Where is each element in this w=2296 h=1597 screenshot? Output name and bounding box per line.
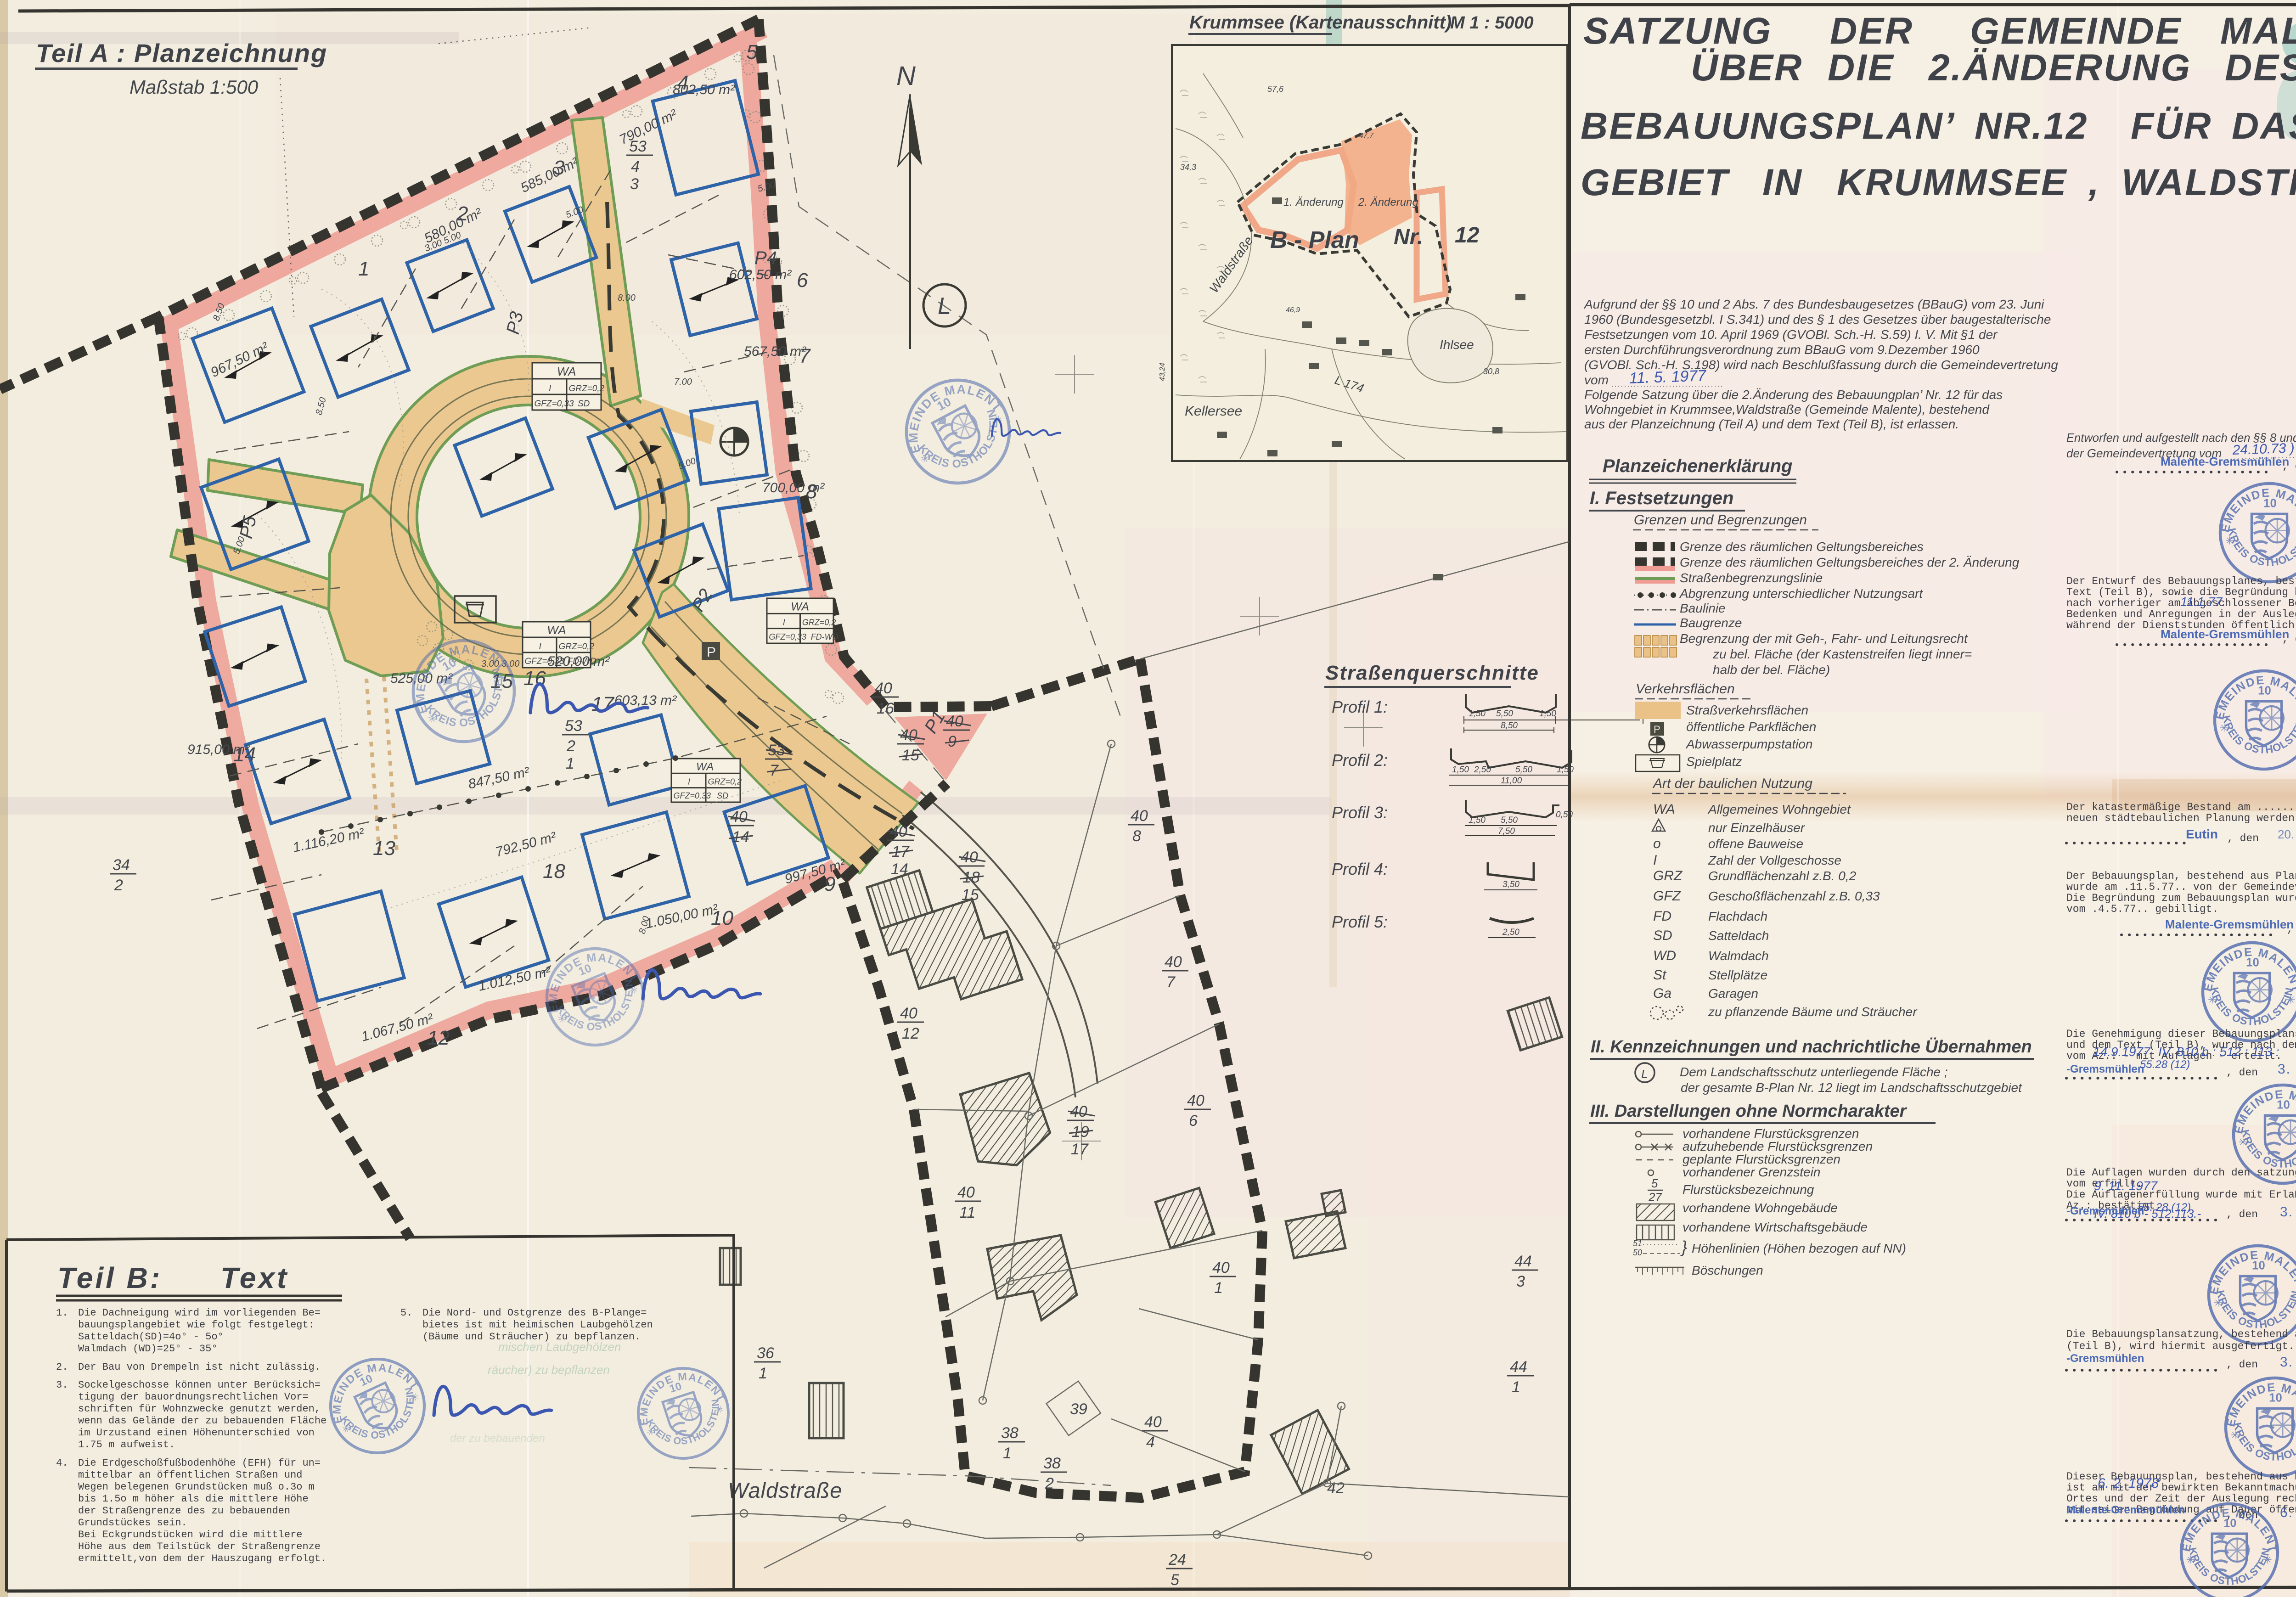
- svg-text:aus der Planzeichnung (Teil A): aus der Planzeichnung (Teil A) und dem T…: [1584, 417, 1959, 431]
- svg-text:IN: IN: [1762, 162, 1803, 203]
- svg-text:18: 18: [543, 860, 565, 883]
- svg-text:Bedenken und Anregungen in der: Bedenken und Anregungen in der Auslegung…: [2066, 608, 2296, 620]
- svg-text:Art der baulichen Nutzung: Art der baulichen Nutzung: [1652, 776, 1812, 791]
- svg-text:3. FEB. 1978: 3. FEB. 1978: [2280, 1355, 2296, 1370]
- svg-text:öffentliche Parkflächen: öffentliche Parkflächen: [1686, 720, 1816, 734]
- svg-text:, den: , den: [2226, 1359, 2258, 1371]
- svg-text:6: 6: [1189, 1112, 1198, 1130]
- svg-text:ermittelt,von dem der Hauszuga: ermittelt,von dem der Hauszugang erfolgt…: [78, 1553, 326, 1564]
- svg-text:Ga: Ga: [1653, 986, 1671, 1001]
- svg-text:,: ,: [2088, 162, 2100, 203]
- svg-text:Waldstraße: Waldstraße: [728, 1478, 842, 1502]
- svg-text:40: 40: [875, 680, 892, 697]
- svg-text:L: L: [938, 293, 951, 320]
- svg-text:DER: DER: [1830, 10, 1913, 52]
- svg-text:520,00 m²: 520,00 m²: [547, 654, 610, 669]
- svg-text:4: 4: [677, 72, 688, 94]
- svg-text:27: 27: [1648, 1190, 1662, 1204]
- svg-text:34,3: 34,3: [1180, 163, 1196, 172]
- svg-text:3: 3: [553, 157, 565, 179]
- svg-text:Der Bebauungsplan, bestehend a: Der Bebauungsplan, bestehend aus Planzei…: [2066, 870, 2296, 882]
- svg-text:BEBAUUNGSPLAN’: BEBAUUNGSPLAN’: [1581, 105, 1955, 147]
- svg-text:schriften für Wohnzwecke genut: schriften für Wohnzwecke genutzt werden,: [78, 1403, 321, 1415]
- svg-text:4.: 4.: [56, 1457, 68, 1469]
- svg-text:MALENTE: MALENTE: [2220, 10, 2296, 52]
- svg-text:Sockelgeschosse können unter B: Sockelgeschosse können unter Berücksich=: [78, 1379, 321, 1391]
- svg-text:Folgende Satzung über die 2.Än: Folgende Satzung über die 2.Änderung des…: [1584, 388, 2003, 402]
- svg-text:2: 2: [114, 877, 123, 894]
- svg-text:7: 7: [1166, 973, 1176, 991]
- svg-text:P: P: [1654, 724, 1660, 735]
- svg-text:ÜBER: ÜBER: [1691, 47, 1803, 89]
- svg-text:44: 44: [1514, 1253, 1532, 1270]
- svg-text:Spielplatz: Spielplatz: [1686, 754, 1742, 769]
- svg-text:Höhenlinien (Höhen bezogen auf: Höhenlinien (Höhen bezogen auf NN): [1692, 1241, 1906, 1255]
- svg-text:7,50: 7,50: [1498, 827, 1515, 836]
- svg-text:8,50: 8,50: [1501, 721, 1518, 731]
- svg-text:GEBIET: GEBIET: [1581, 162, 1730, 203]
- svg-text:GRZ=0,2: GRZ=0,2: [708, 777, 742, 787]
- svg-text:11,00: 11,00: [1501, 776, 1522, 786]
- svg-text:nur Einzelhäuser: nur Einzelhäuser: [1708, 821, 1806, 835]
- svg-text:3. FEB. 1978: 3. FEB. 1978: [2278, 1062, 2296, 1077]
- svg-text:Aufgrund der §§ 10 und 2 Abs.: Aufgrund der §§ 10 und 2 Abs. 7 des Bund…: [1583, 297, 2044, 311]
- svg-text:6. FEB. 1978: 6. FEB. 1978: [2280, 1505, 2296, 1520]
- svg-text:im Urzustand einen Höhenunters: im Urzustand einen Höhenunterschied von: [78, 1427, 315, 1439]
- svg-text:, den: , den: [2282, 461, 2296, 472]
- svg-text:16: 16: [877, 700, 894, 717]
- svg-text:5.: 5.: [400, 1307, 412, 1319]
- svg-text:Profil 4:: Profil 4:: [1332, 860, 1388, 878]
- svg-text:Abwasserpumpstation: Abwasserpumpstation: [1685, 737, 1812, 751]
- svg-text:8.00: 8.00: [618, 293, 636, 303]
- svg-text:WA: WA: [547, 623, 566, 637]
- svg-text:Grenzen und Begrenzungen: Grenzen und Begrenzungen: [1634, 512, 1807, 528]
- svg-text:KRUMMSEE: KRUMMSEE: [1837, 162, 2067, 203]
- svg-text:NR.12: NR.12: [1975, 105, 2088, 147]
- svg-text:Garagen: Garagen: [1708, 986, 1758, 1001]
- svg-text:, den: , den: [2227, 832, 2259, 844]
- svg-text:Die Begründung zum Bebauungspl: Die Begründung zum Bebauungsplan wurde m…: [2066, 892, 2296, 904]
- svg-text:Walmdach (WD)=25° - 35°: Walmdach (WD)=25° - 35°: [78, 1343, 218, 1355]
- svg-text:43,24: 43,24: [1159, 363, 1166, 381]
- svg-text:Ihlsee: Ihlsee: [1440, 337, 1474, 352]
- svg-text:Abgrenzung unterschiedlicher N: Abgrenzung unterschiedlicher Nutzungsart: [1679, 586, 1923, 601]
- svg-text:Malente-Gremsmühlen: Malente-Gremsmühlen: [2161, 455, 2289, 468]
- svg-text:(Teil B), wird hiermit ausgefe: (Teil B), wird hiermit ausgefertigt.: [2066, 1340, 2295, 1352]
- svg-text:GRZ: GRZ: [1653, 868, 1683, 883]
- svg-text:3.: 3.: [56, 1379, 68, 1391]
- svg-text:GRZ=0,2: GRZ=0,2: [802, 618, 836, 627]
- svg-text:30,8: 30,8: [1483, 367, 1499, 376]
- svg-text:Maßstab 1:500: Maßstab 1:500: [129, 76, 259, 98]
- svg-text:1.75 m aufweist.: 1.75 m aufweist.: [78, 1439, 175, 1451]
- svg-text:Grenze des räumlichen Geltungs: Grenze des räumlichen Geltungsbereiches: [1680, 540, 1924, 554]
- svg-text:DAS: DAS: [2232, 105, 2296, 147]
- svg-text:DES: DES: [2225, 47, 2296, 89]
- svg-text:, den: , den: [2226, 1067, 2258, 1079]
- svg-text:GRZ=0,2: GRZ=0,2: [558, 642, 594, 652]
- svg-text:11.1.77.: 11.1.77.: [2180, 595, 2226, 609]
- svg-text:5: 5: [1651, 1176, 1658, 1190]
- svg-text:Stellplätze: Stellplätze: [1708, 968, 1767, 982]
- svg-text:GFZ=0,33: GFZ=0,33: [535, 399, 574, 409]
- svg-text:Eutin: Eutin: [2186, 827, 2218, 841]
- svg-text:Bei Eckgrundstücken wird die m: Bei Eckgrundstücken wird die mittlere: [78, 1529, 302, 1541]
- svg-text:Höhe aus dem Teilstück der Str: Höhe aus dem Teilstück der Straßengrenze: [78, 1541, 321, 1552]
- svg-text:40: 40: [1165, 953, 1182, 971]
- svg-text:Böschungen: Böschungen: [1692, 1263, 1763, 1277]
- svg-text:I: I: [549, 384, 551, 394]
- svg-text:Dem Landschaftsschutz unterlie: Dem Landschaftsschutz unterliegende Fläc…: [1680, 1065, 1948, 1079]
- svg-text:1: 1: [566, 755, 574, 772]
- svg-text:1,50: 1,50: [1539, 709, 1556, 719]
- svg-text:1: 1: [1214, 1279, 1223, 1297]
- svg-text:neuen städtebaulichen Planung: neuen städtebaulichen Planung werden als…: [2066, 812, 2296, 824]
- svg-text:567,50 m²: 567,50 m²: [744, 344, 806, 359]
- svg-text:bietes ist mit heimischen Laub: bietes ist mit heimischen Laubgehölzen: [422, 1319, 653, 1331]
- svg-text:Zahl der Vollgeschosse: Zahl der Vollgeschosse: [1708, 853, 1841, 867]
- svg-text:8: 8: [1132, 827, 1141, 845]
- svg-text:5,50: 5,50: [1496, 709, 1513, 719]
- svg-text:bis 1.5o m höher als die mittl: bis 1.5o m höher als die mittlere Höhe: [78, 1493, 309, 1505]
- svg-text:Die Genehmigung dieser Bebauun: Die Genehmigung dieser Bebauungsplansatz…: [2066, 1028, 2296, 1040]
- svg-text:55.28 (12): 55.28 (12): [2140, 1058, 2190, 1071]
- svg-text:I: I: [539, 642, 542, 652]
- svg-text:mittelbar an öffentlichen Stra: mittelbar an öffentlichen Straßen und: [78, 1469, 302, 1481]
- svg-text:3: 3: [1516, 1273, 1525, 1290]
- svg-text:12: 12: [427, 1027, 450, 1049]
- svg-text:-Gremsmühlen: -Gremsmühlen: [2066, 1063, 2144, 1075]
- svg-text:vom: vom: [1584, 373, 1609, 387]
- svg-text:Kellersee: Kellersee: [1185, 404, 1242, 419]
- svg-text:WA: WA: [696, 760, 714, 773]
- svg-text:St: St: [1653, 967, 1667, 983]
- svg-text:offene Bauweise: offene Bauweise: [1708, 837, 1803, 851]
- svg-text:vorhandene Wohngebäude: vorhandene Wohngebäude: [1683, 1201, 1838, 1215]
- svg-text:2,50: 2,50: [1502, 928, 1519, 937]
- svg-text:14.9.1977: 14.9.1977: [2093, 1045, 2151, 1059]
- svg-text:Wohngebiet in Krummsee,Waldstr: Wohngebiet in Krummsee,Waldstraße (Gemei…: [1584, 402, 1990, 416]
- svg-text:55. 28.(12): 55. 28.(12): [2138, 1201, 2191, 1214]
- svg-text:halb der bel. Fläche): halb der bel. Fläche): [1713, 663, 1830, 677]
- svg-text:Satteldach: Satteldach: [1708, 928, 1769, 943]
- svg-text:38: 38: [1043, 1455, 1061, 1472]
- svg-text:2.: 2.: [56, 1361, 68, 1373]
- svg-text:24: 24: [1168, 1551, 1186, 1569]
- svg-text:6. 2. 1978: 6. 2. 1978: [2098, 1476, 2159, 1491]
- svg-text:Die Auflagen wurden durch den: Die Auflagen wurden durch den satzungsän…: [2066, 1167, 2296, 1179]
- svg-text:GFZ: GFZ: [1653, 888, 1682, 904]
- svg-text:SATZUNG: SATZUNG: [1583, 10, 1772, 52]
- svg-text:der Straßengrenze des zu bebau: der Straßengrenze des zu bebauenden: [78, 1505, 290, 1517]
- svg-text:2: 2: [456, 202, 468, 225]
- svg-text:Baulinie: Baulinie: [1680, 601, 1726, 615]
- svg-text:Profil 5:: Profil 5:: [1332, 912, 1388, 931]
- svg-text:39: 39: [1070, 1400, 1087, 1418]
- svg-text:WA: WA: [1653, 802, 1675, 817]
- svg-text:2: 2: [1045, 1475, 1054, 1492]
- svg-text:1960 (Bundesgesetzbl. I S.341): 1960 (Bundesgesetzbl. I S.341) und des §…: [1584, 312, 2051, 326]
- svg-text:Begrenzung der mit Geh-, Fahr-: Begrenzung der mit Geh-, Fahr- und Leitu…: [1680, 631, 1968, 646]
- svg-text:1,50: 1,50: [1469, 709, 1486, 719]
- svg-text:4: 4: [631, 158, 640, 175]
- svg-text:1. Änderung: 1. Änderung: [1283, 196, 1344, 208]
- svg-text:12: 12: [902, 1025, 919, 1042]
- svg-text:N: N: [896, 61, 916, 91]
- svg-text:Die Erdgeschoßfußbodenhöhe (EF: Die Erdgeschoßfußbodenhöhe (EFH) für un=: [78, 1457, 321, 1469]
- svg-text:I. Festsetzungen: I. Festsetzungen: [1590, 488, 1733, 508]
- svg-text:57,6: 57,6: [1267, 84, 1284, 94]
- svg-text:, den: , den: [2287, 923, 2296, 935]
- svg-text:Planzeichenerklärung: Planzeichenerklärung: [1603, 456, 1792, 476]
- svg-text:40: 40: [1187, 1092, 1204, 1109]
- svg-text:GFZ=0,33: GFZ=0,33: [674, 791, 711, 800]
- svg-text:L: L: [1641, 1067, 1648, 1081]
- svg-text:47,7: 47,7: [1359, 132, 1374, 140]
- svg-text:Straßverkehrsflächen: Straßverkehrsflächen: [1686, 703, 1808, 717]
- svg-text:42: 42: [1327, 1479, 1345, 1497]
- svg-text:46,9: 46,9: [1286, 306, 1300, 314]
- svg-text:wenn das Gelände der zu bebaue: wenn das Gelände der zu bebauenden Fläch…: [78, 1415, 326, 1427]
- svg-text:602,50 m²: 602,50 m²: [729, 267, 792, 282]
- svg-text:zu bel. Fläche (der Kastenstre: zu bel. Fläche (der Kastenstreifen liegt…: [1712, 647, 1972, 661]
- svg-text:Der Entwurf des Bebauungsplane: Der Entwurf des Bebauungsplanes, bestehe…: [2066, 575, 2296, 587]
- svg-text:Profil 3:: Profil 3:: [1332, 803, 1388, 822]
- svg-text:II. Kennzeichnungen und nachri: II. Kennzeichnungen und nachrichtliche Ü…: [1591, 1037, 2032, 1057]
- svg-text:}: }: [1680, 1237, 1687, 1256]
- svg-text:40: 40: [900, 1005, 917, 1022]
- svg-text:7.00: 7.00: [674, 377, 692, 387]
- svg-text:bauungsplangebiet wie folgt fe: bauungsplangebiet wie folgt festgelegt:: [78, 1319, 315, 1331]
- svg-text:3: 3: [630, 175, 639, 193]
- svg-text:SD: SD: [1653, 928, 1672, 943]
- svg-text:Satteldach(SD)=4o° - 5o°: Satteldach(SD)=4o° - 5o°: [78, 1331, 224, 1343]
- svg-text:Flurstücksbezeichnung: Flurstücksbezeichnung: [1683, 1182, 1814, 1197]
- svg-text:Teil B:: Teil B:: [57, 1261, 162, 1294]
- svg-text:Baugrenze: Baugrenze: [1680, 616, 1742, 630]
- svg-text:Allgemeines Wohngebiet: Allgemeines Wohngebiet: [1707, 802, 1851, 816]
- svg-text:Malente-Gremsmühlen: Malente-Gremsmühlen: [2066, 1504, 2185, 1516]
- svg-text:FD-WD: FD-WD: [811, 632, 838, 641]
- svg-text:44: 44: [1510, 1358, 1527, 1376]
- svg-text:FD: FD: [1653, 909, 1671, 924]
- svg-text:zu pflanzende Bäume und Sträuc: zu pflanzende Bäume und Sträucher: [1708, 1005, 1918, 1019]
- svg-text:Geschoßflächenzahl z.B. 0,33: Geschoßflächenzahl z.B. 0,33: [1708, 889, 1880, 903]
- svg-text:3. FEB. 1978: 3. FEB. 1978: [2280, 1204, 2296, 1220]
- svg-text:Ortes und der Zeit der Auslegu: Ortes und der Zeit der Auslegung rechtsv…: [2066, 1493, 2296, 1505]
- svg-text:aufzuhebende Flurstücksgrenzen: aufzuhebende Flurstücksgrenzen: [1683, 1139, 1873, 1153]
- svg-text:GRZ=0,2: GRZ=0,2: [569, 384, 605, 394]
- svg-text:8: 8: [806, 480, 817, 503]
- svg-text:Walmdach: Walmdach: [1708, 949, 1769, 963]
- svg-text:3,50: 3,50: [1503, 880, 1519, 889]
- svg-text:Malente-Gremsmühlen: Malente-Gremsmühlen: [2161, 627, 2289, 641]
- svg-text:B - Plan: B - Plan: [1270, 227, 1359, 253]
- svg-text:o: o: [1653, 836, 1661, 851]
- svg-text:5,50: 5,50: [1515, 765, 1532, 775]
- svg-text:5: 5: [746, 41, 758, 63]
- svg-text:WALDSTRASSE: WALDSTRASSE: [2122, 162, 2296, 203]
- svg-text:Die Nord- und Ostgrenze des B-: Die Nord- und Ostgrenze des B-Plange=: [422, 1307, 647, 1319]
- svg-text:geplante Flurstücksgrenzen: geplante Flurstücksgrenzen: [1683, 1152, 1840, 1166]
- svg-text:Profil 1:: Profil 1:: [1332, 697, 1388, 716]
- svg-text:Verkehrsflächen: Verkehrsflächen: [1636, 681, 1735, 697]
- svg-text:vorhandene Wirtschaftsgebäude: vorhandene Wirtschaftsgebäude: [1683, 1220, 1868, 1234]
- svg-text:Der katastermäßige Bestand am: Der katastermäßige Bestand am ....... so…: [2066, 801, 2296, 813]
- svg-text:WD: WD: [1653, 948, 1676, 963]
- svg-text:1,50: 1,50: [1452, 765, 1469, 775]
- svg-text:mischen Laubgehölzen: mischen Laubgehölzen: [498, 1340, 621, 1354]
- svg-text:1: 1: [358, 258, 369, 280]
- svg-text:9: 9: [824, 873, 835, 895]
- svg-text:ersten Durchführungsverordnung: ersten Durchführungsverordnung zum BBauG…: [1584, 343, 1980, 357]
- svg-text:Profil 2:: Profil 2:: [1332, 751, 1388, 770]
- svg-text:Nr.: Nr.: [1394, 225, 1423, 249]
- svg-text:50: 50: [1633, 1248, 1642, 1257]
- svg-text:13: 13: [373, 837, 395, 860]
- svg-text:GFZ=0,33: GFZ=0,33: [769, 632, 806, 641]
- svg-text:40: 40: [957, 1184, 975, 1201]
- svg-text:34: 34: [113, 856, 130, 874]
- svg-text:SD: SD: [578, 399, 590, 409]
- svg-text:P: P: [707, 645, 716, 660]
- svg-text:40: 40: [1212, 1259, 1230, 1276]
- svg-text:Grundstückes sein.: Grundstückes sein.: [78, 1517, 187, 1529]
- svg-text:5,50: 5,50: [1501, 815, 1518, 825]
- svg-text:2. Änderung: 2. Änderung: [1358, 196, 1418, 208]
- svg-text:36: 36: [757, 1344, 774, 1362]
- svg-text:Text: Text: [220, 1261, 289, 1294]
- svg-text:20. JULI 1977: 20. JULI 1977: [2278, 827, 2296, 841]
- svg-text:9. 11. 1977: 9. 11. 1977: [2094, 1179, 2158, 1193]
- svg-text:17: 17: [1071, 1141, 1089, 1158]
- svg-text:IV. 810 b : 512 : 113 :: IV. 810 b : 512 : 113 :: [2158, 1045, 2279, 1059]
- svg-text:1,50: 1,50: [1557, 765, 1574, 775]
- svg-text:-Gremsmühlen: -Gremsmühlen: [2066, 1352, 2144, 1365]
- svg-text:Krummsee (Kartenausschnitt): Krummsee (Kartenausschnitt): [1189, 12, 1452, 33]
- svg-text:, den: , den: [2282, 633, 2296, 645]
- svg-text:2.ÄNDERUNG: 2.ÄNDERUNG: [1928, 47, 2191, 89]
- svg-text:2: 2: [566, 737, 575, 755]
- svg-text:GEMEINDE: GEMEINDE: [1970, 10, 2182, 52]
- svg-text:vorhandener Grenzstein: vorhandener Grenzstein: [1683, 1165, 1820, 1179]
- svg-text:1,50: 1,50: [1469, 815, 1486, 825]
- svg-text:DIE: DIE: [1828, 47, 1895, 89]
- svg-text:I: I: [688, 777, 690, 787]
- svg-text:wurde am .11.5.77.. von der Ge: wurde am .11.5.77.. von der Gemeindevert…: [2066, 881, 2296, 893]
- svg-text:vorhandene Flurstücksgrenzen: vorhandene Flurstücksgrenzen: [1683, 1126, 1859, 1141]
- svg-text:WA: WA: [791, 600, 809, 613]
- svg-text:40: 40: [1144, 1413, 1162, 1431]
- svg-text:der gesamte B-Plan Nr. 12 lieg: der gesamte B-Plan Nr. 12 liegt im Lands…: [1681, 1080, 2022, 1095]
- svg-text:FÜR: FÜR: [2131, 105, 2212, 147]
- svg-text:1: 1: [1003, 1445, 1012, 1462]
- svg-text:53: 53: [565, 717, 582, 735]
- svg-text:P4: P4: [754, 248, 777, 268]
- svg-text:III. Darstellungen ohne Normch: III. Darstellungen ohne Normcharakter: [1590, 1102, 1908, 1121]
- svg-text:Die Bebauungsplansatzung, best: Die Bebauungsplansatzung, bestehend aus …: [2066, 1328, 2296, 1340]
- svg-text:Wegen belegenen Grundstücken m: Wegen belegenen Grundstücken muß o.3o m: [78, 1481, 315, 1493]
- svg-text:14: 14: [233, 743, 256, 766]
- svg-text:tigung der bauordnungsrechtlic: tigung der bauordnungsrechtlichen Vor=: [78, 1391, 309, 1403]
- svg-text:Grenze des räumlichen Geltungs: Grenze des räumlichen Geltungsbereiches …: [1680, 555, 2020, 569]
- svg-text:-Gremsmühlen: -Gremsmühlen: [2066, 1205, 2144, 1217]
- svg-text:1.: 1.: [56, 1307, 68, 1319]
- svg-text:Grundflächenzahl z.B. 0,2: Grundflächenzahl z.B. 0,2: [1708, 869, 1857, 883]
- svg-text:53: 53: [629, 138, 647, 155]
- svg-text:40: 40: [1131, 807, 1148, 825]
- svg-text:Flachdach: Flachdach: [1708, 909, 1767, 923]
- svg-text:M 1 : 5000: M 1 : 5000: [1450, 13, 1534, 33]
- svg-text:11: 11: [959, 1204, 975, 1221]
- svg-text:WA: WA: [557, 365, 576, 378]
- svg-text:5: 5: [1171, 1571, 1179, 1589]
- svg-text:Malente-Gremsmühlen: Malente-Gremsmühlen: [2165, 917, 2294, 931]
- svg-text:Der Bau von Drempeln ist nicht: Der Bau von Drempeln ist nicht zulässig.: [78, 1361, 321, 1373]
- svg-text:Teil A : Planzeichnung: Teil A : Planzeichnung: [36, 39, 327, 67]
- svg-text:7: 7: [799, 345, 811, 367]
- svg-text:11. 5. 1977: 11. 5. 1977: [1629, 367, 1707, 387]
- svg-text:12: 12: [1455, 223, 1480, 247]
- svg-text:Festsetzungen vom 10. April 19: Festsetzungen vom 10. April 1969 (GVOBl.…: [1584, 327, 1998, 342]
- svg-text:, den: , den: [2226, 1209, 2258, 1220]
- svg-text:vom .4.5.77.. gebilligt.: vom .4.5.77.. gebilligt.: [2066, 903, 2218, 915]
- svg-text:Straßenbegrenzungslinie: Straßenbegrenzungslinie: [1680, 571, 1823, 585]
- svg-text:Straßenquerschnitte: Straßenquerschnitte: [1325, 662, 1539, 684]
- svg-text:38: 38: [1001, 1424, 1019, 1442]
- svg-text:I: I: [783, 618, 785, 627]
- svg-text:6: 6: [797, 269, 808, 292]
- svg-text:der zu bebauenden: der zu bebauenden: [450, 1432, 545, 1445]
- svg-text:10: 10: [711, 907, 733, 929]
- svg-text:0,50: 0,50: [1556, 810, 1573, 820]
- svg-text:Die Dachneigung wird im vorlie: Die Dachneigung wird im vorliegenden Be=: [78, 1307, 321, 1319]
- svg-text:1: 1: [1512, 1378, 1520, 1396]
- svg-text:I: I: [1653, 853, 1657, 868]
- svg-text:2,50: 2,50: [1474, 765, 1491, 775]
- svg-text:51: 51: [1633, 1239, 1642, 1248]
- svg-text:räucher) zu bepflanzen: räucher) zu bepflanzen: [488, 1363, 610, 1377]
- svg-text:1: 1: [759, 1365, 767, 1382]
